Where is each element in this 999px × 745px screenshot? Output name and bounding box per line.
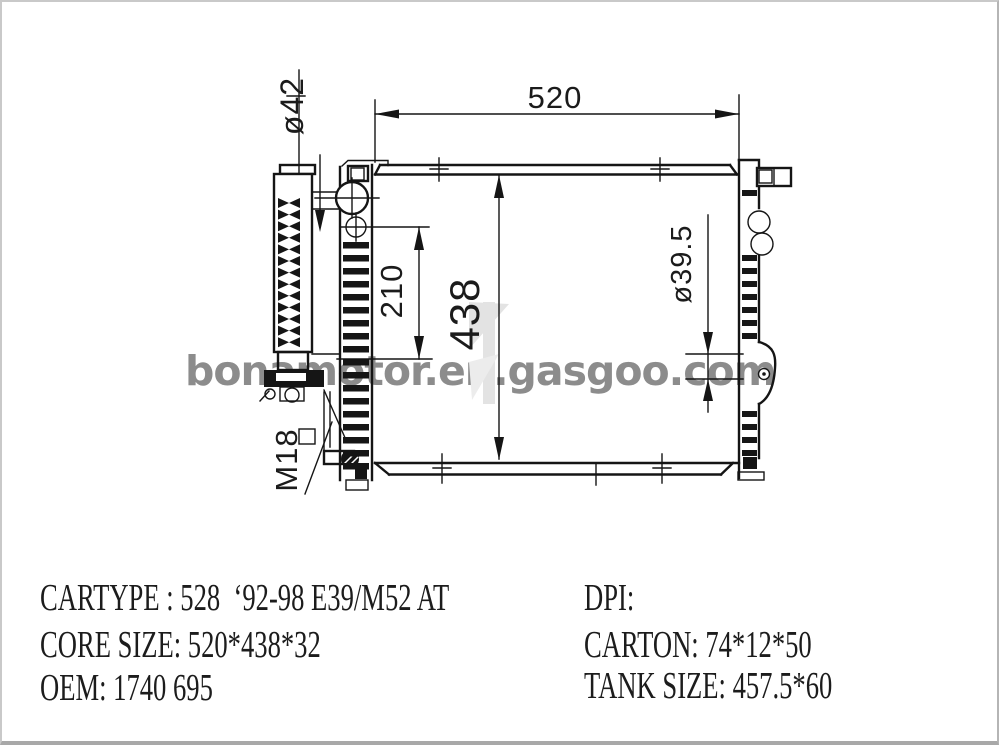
right-tank-ribs — [742, 190, 757, 456]
dimension-core-width: 520 — [375, 80, 739, 162]
left-tank-ribs — [343, 242, 369, 470]
receiver-drier — [260, 165, 346, 451]
spec-dpi: DPI: — [584, 579, 634, 617]
drain-plug — [285, 388, 299, 402]
spec-core-size: CORE SIZE: 520*438*32 — [40, 626, 321, 664]
radiator-technical-drawing: 520 438 210 ø42 — [2, 2, 999, 562]
upper-port-circle — [748, 211, 770, 233]
inlet-port-label: ø42 — [274, 77, 310, 135]
core-height-label: 438 — [441, 277, 488, 350]
drain-thread-label: M18 — [269, 428, 304, 491]
bottom-outlet — [305, 422, 367, 494]
pitch-label: 210 — [374, 264, 409, 319]
radiator-spec-sheet: bonamotor.en.gasgoo.com — [0, 0, 999, 745]
left-tank — [315, 161, 429, 491]
core-bottom-tank — [375, 454, 739, 485]
spec-tank-size: TANK SIZE: 457.5*60 — [584, 667, 832, 705]
spec-oem: OEM: 1740 695 — [40, 669, 213, 707]
dimension-outlet-port: ø39.5 — [666, 215, 743, 412]
core-top-tank — [375, 158, 738, 181]
spec-carton: CARTON: 74*12*50 — [584, 626, 812, 664]
upper-port-circle-2 — [751, 233, 773, 255]
core-width-label: 520 — [528, 80, 583, 115]
spec-cartype: CARTYPE : 528 ‘92-98 E39/M52 AT — [40, 579, 449, 617]
outlet-port-label: ø39.5 — [666, 224, 698, 303]
right-tank — [738, 160, 791, 480]
